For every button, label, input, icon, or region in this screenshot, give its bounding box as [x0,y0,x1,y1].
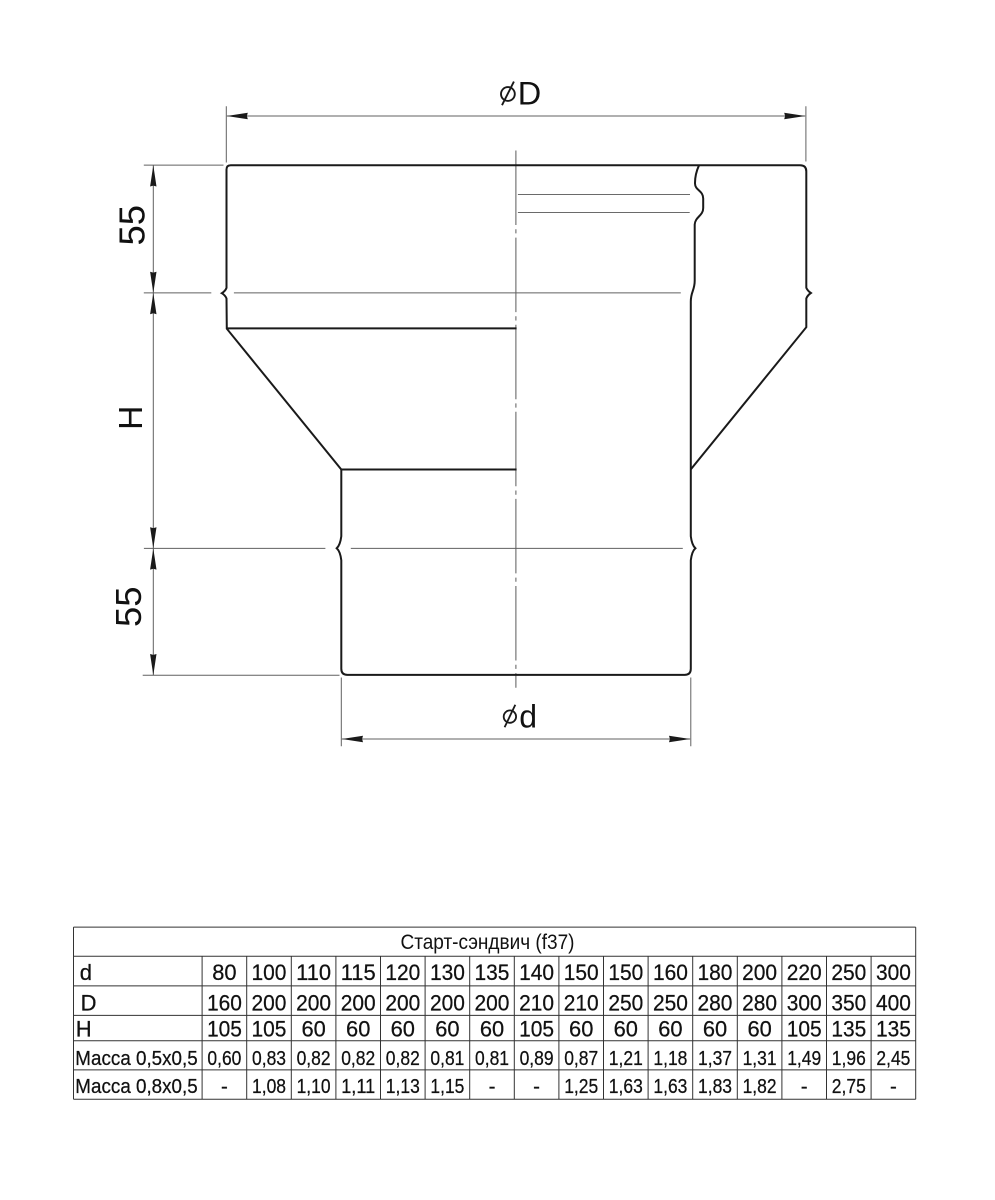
svg-text:60: 60 [569,1017,593,1042]
svg-text:60: 60 [301,1017,325,1042]
svg-text:160: 160 [653,960,688,985]
svg-text:1,18: 1,18 [653,1047,687,1070]
svg-text:200: 200 [430,990,465,1015]
svg-text:Старт-сэндвич (f37): Старт-сэндвич (f37) [401,931,575,954]
svg-text:0,83: 0,83 [252,1047,286,1070]
svg-text:55: 55 [108,586,149,627]
svg-text:350: 350 [831,990,866,1015]
svg-text:60: 60 [391,1017,415,1042]
svg-text:H: H [113,406,150,430]
svg-text:d: d [519,699,537,735]
svg-text:300: 300 [876,960,911,985]
svg-text:105: 105 [787,1017,822,1042]
svg-text:135: 135 [876,1017,911,1042]
svg-text:0,87: 0,87 [564,1047,598,1070]
svg-text:D: D [518,76,541,112]
svg-text:105: 105 [252,1017,287,1042]
svg-text:0,82: 0,82 [386,1047,420,1070]
svg-text:100: 100 [252,960,287,985]
svg-text:60: 60 [480,1017,504,1042]
svg-text:200: 200 [385,990,420,1015]
svg-text:160: 160 [207,990,242,1015]
svg-text:d: d [80,960,92,985]
svg-text:200: 200 [296,990,331,1015]
svg-text:Масса 0,8х0,5: Масса 0,8х0,5 [75,1075,198,1098]
svg-text:1,82: 1,82 [743,1075,777,1098]
svg-text:280: 280 [698,990,733,1015]
svg-text:150: 150 [608,960,643,985]
svg-text:250: 250 [831,960,866,985]
svg-text:250: 250 [608,990,643,1015]
svg-text:1,63: 1,63 [653,1075,687,1098]
svg-text:60: 60 [435,1017,459,1042]
svg-text:140: 140 [519,960,554,985]
svg-text:2,45: 2,45 [876,1047,910,1070]
svg-text:110: 110 [296,960,331,985]
svg-text:210: 210 [564,990,599,1015]
svg-text:60: 60 [658,1017,682,1042]
svg-text:135: 135 [831,1017,866,1042]
svg-text:1,25: 1,25 [564,1075,598,1098]
svg-text:Масса 0,5х0,5: Масса 0,5х0,5 [75,1047,198,1070]
svg-text:60: 60 [747,1017,771,1042]
svg-text:60: 60 [346,1017,370,1042]
svg-text:1,11: 1,11 [341,1075,375,1098]
svg-text:1,83: 1,83 [698,1075,732,1098]
svg-text:D: D [81,990,97,1015]
svg-text:1,31: 1,31 [743,1047,777,1070]
svg-text:200: 200 [742,960,777,985]
svg-text:-: - [533,1075,540,1098]
svg-text:220: 220 [787,960,822,985]
svg-text:0,82: 0,82 [297,1047,331,1070]
svg-text:280: 280 [742,990,777,1015]
svg-text:1,63: 1,63 [609,1075,643,1098]
svg-text:105: 105 [207,1017,242,1042]
svg-text:1,15: 1,15 [430,1075,464,1098]
svg-text:0,82: 0,82 [341,1047,375,1070]
svg-text:80: 80 [212,960,236,985]
svg-text:120: 120 [385,960,420,985]
svg-text:250: 250 [653,990,688,1015]
svg-text:1,96: 1,96 [832,1047,866,1070]
svg-text:60: 60 [614,1017,638,1042]
svg-text:115: 115 [341,960,376,985]
svg-text:2,75: 2,75 [832,1075,866,1098]
svg-text:105: 105 [519,1017,554,1042]
svg-text:0,81: 0,81 [430,1047,464,1070]
svg-text:135: 135 [475,960,510,985]
svg-text:60: 60 [703,1017,727,1042]
svg-text:180: 180 [698,960,733,985]
svg-text:0,89: 0,89 [520,1047,554,1070]
svg-text:150: 150 [564,960,599,985]
svg-text:200: 200 [252,990,287,1015]
svg-text:-: - [221,1075,228,1098]
svg-text:300: 300 [787,990,822,1015]
svg-text:200: 200 [475,990,510,1015]
svg-text:1,21: 1,21 [609,1047,643,1070]
svg-text:1,13: 1,13 [386,1075,420,1098]
svg-text:210: 210 [519,990,554,1015]
svg-text:130: 130 [430,960,465,985]
svg-text:-: - [801,1075,808,1098]
svg-text:1,08: 1,08 [252,1075,286,1098]
svg-text:1,37: 1,37 [698,1047,732,1070]
svg-text:H: H [76,1017,92,1042]
svg-text:400: 400 [876,990,911,1015]
svg-text:1,49: 1,49 [787,1047,821,1070]
svg-text:55: 55 [111,205,152,246]
svg-text:1,10: 1,10 [297,1075,331,1098]
svg-text:0,60: 0,60 [207,1047,241,1070]
svg-text:-: - [489,1075,496,1098]
svg-text:0,81: 0,81 [475,1047,509,1070]
svg-text:-: - [890,1075,897,1098]
svg-text:200: 200 [341,990,376,1015]
